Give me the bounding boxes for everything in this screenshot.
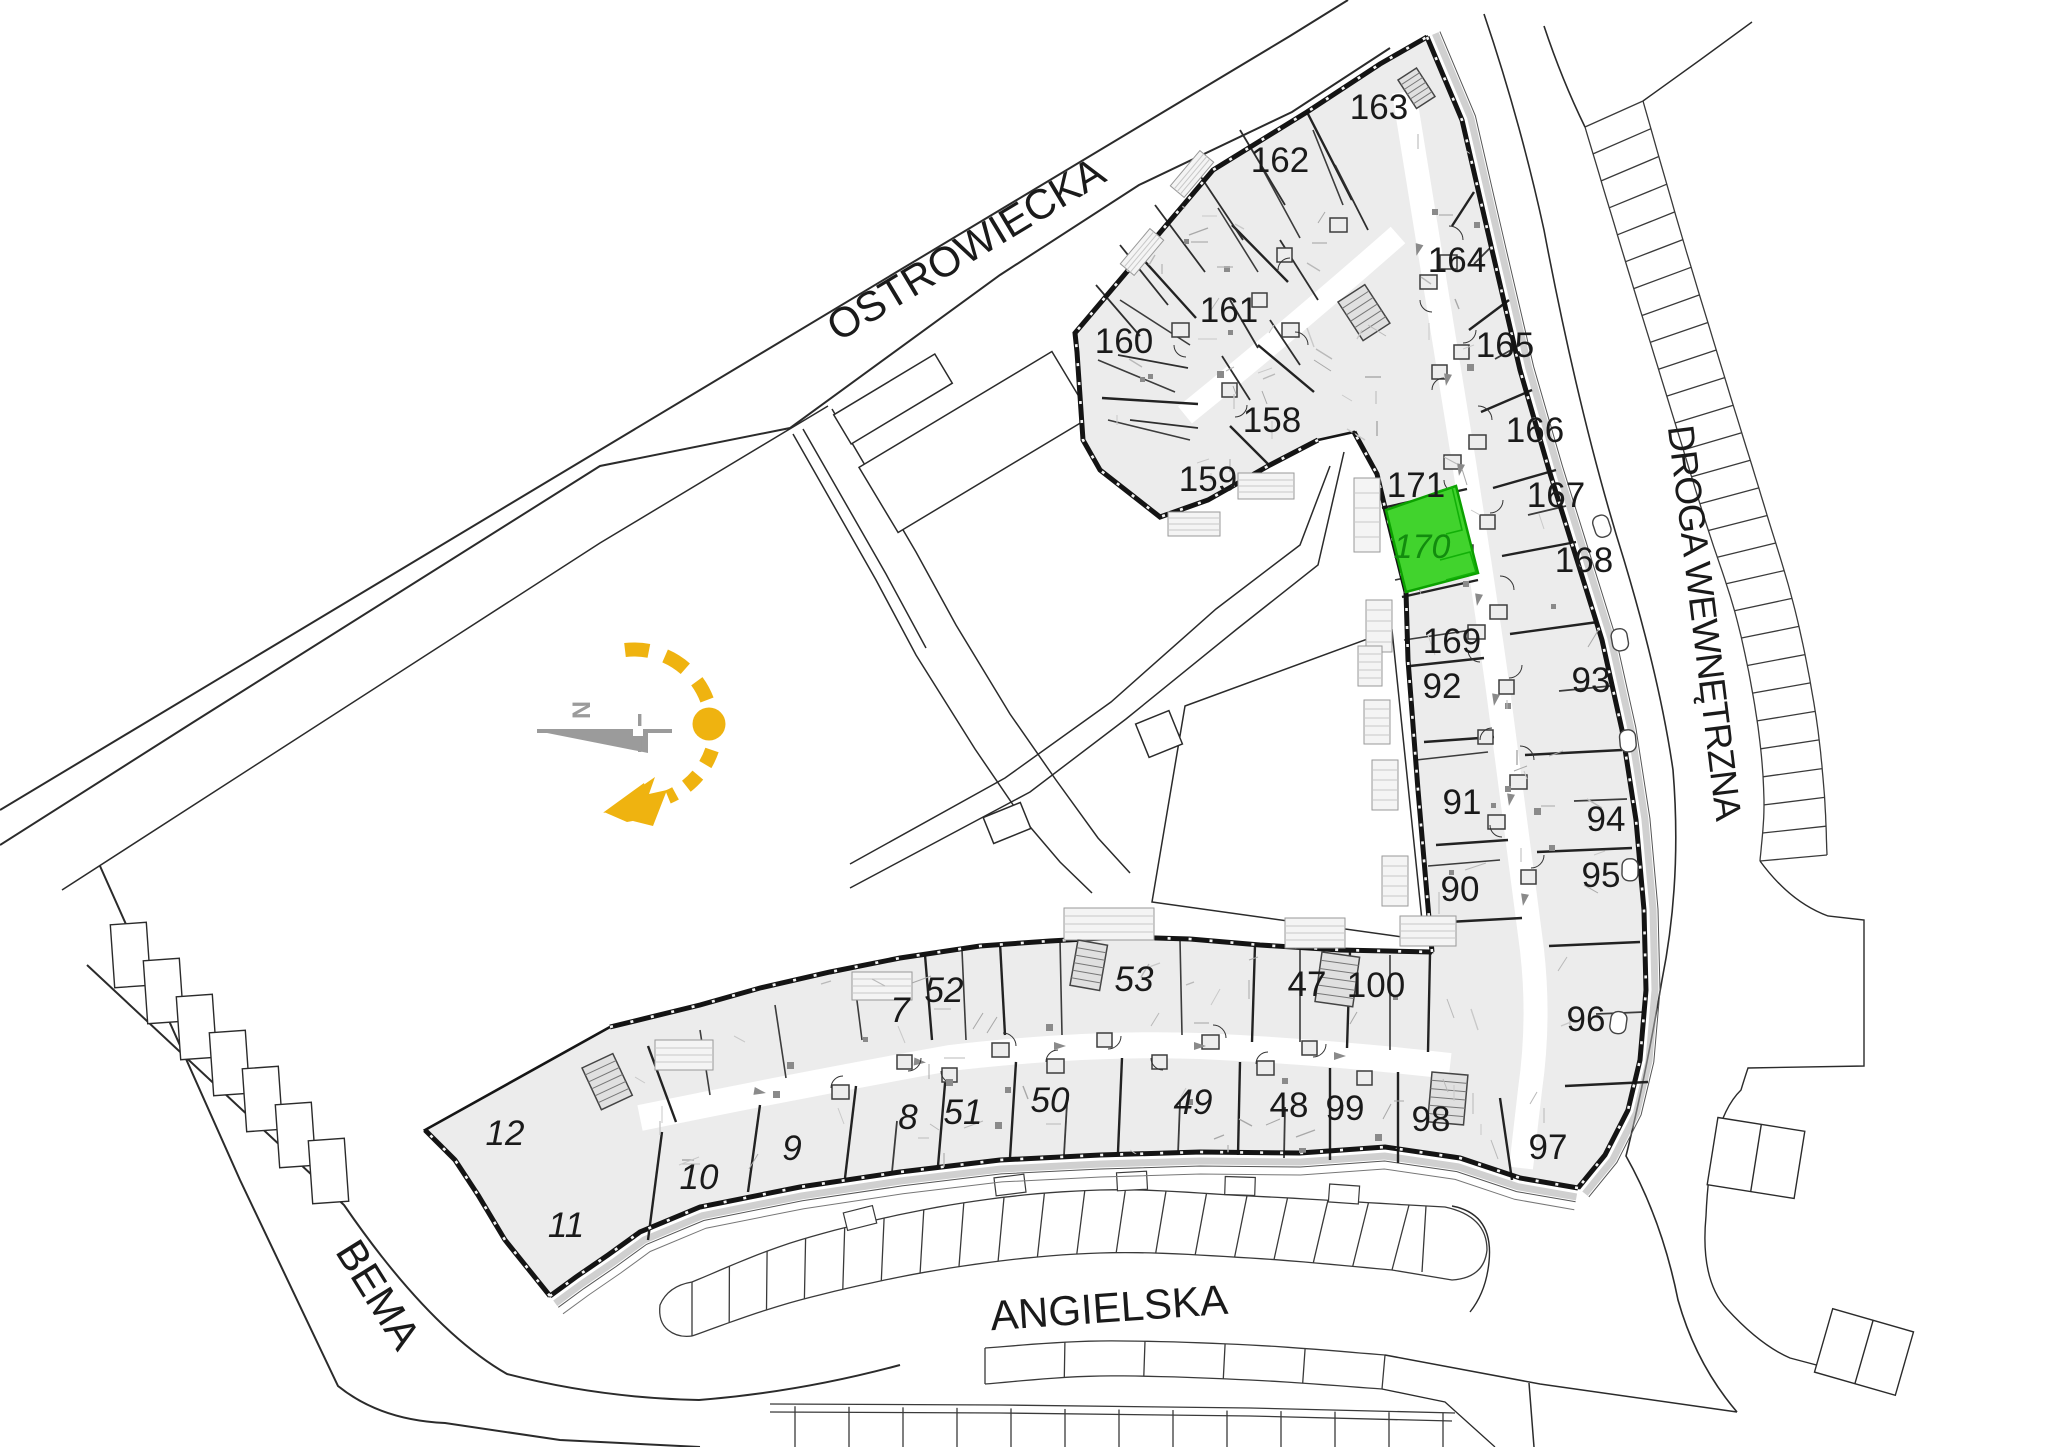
svg-text:95: 95: [1582, 856, 1621, 895]
svg-text:162: 162: [1251, 141, 1309, 180]
svg-text:52: 52: [925, 971, 964, 1010]
svg-text:100: 100: [1347, 966, 1405, 1005]
svg-text:166: 166: [1506, 411, 1564, 450]
svg-text:158: 158: [1243, 401, 1301, 440]
svg-text:50: 50: [1031, 1081, 1070, 1120]
svg-text:8: 8: [898, 1098, 918, 1137]
svg-text:165: 165: [1476, 326, 1534, 365]
svg-text:47: 47: [1288, 965, 1327, 1004]
svg-text:163: 163: [1350, 88, 1408, 127]
svg-text:93: 93: [1572, 661, 1611, 700]
svg-text:97: 97: [1529, 1128, 1568, 1167]
svg-text:161: 161: [1200, 291, 1258, 330]
svg-text:98: 98: [1412, 1100, 1451, 1139]
svg-text:167: 167: [1527, 476, 1585, 515]
svg-text:99: 99: [1326, 1089, 1365, 1128]
svg-text:7: 7: [890, 991, 911, 1030]
svg-text:171: 171: [1387, 466, 1445, 505]
svg-text:159: 159: [1179, 460, 1237, 499]
svg-text:94: 94: [1587, 800, 1626, 839]
svg-text:11: 11: [548, 1206, 584, 1245]
svg-text:48: 48: [1270, 1086, 1309, 1125]
svg-text:160: 160: [1095, 322, 1153, 361]
svg-text:12: 12: [486, 1114, 525, 1153]
svg-text:51: 51: [944, 1093, 983, 1132]
svg-text:96: 96: [1567, 1000, 1606, 1039]
svg-text:53: 53: [1115, 960, 1154, 999]
svg-text:90: 90: [1441, 870, 1480, 909]
svg-text:92: 92: [1423, 667, 1462, 706]
svg-text:170: 170: [1394, 528, 1451, 566]
svg-text:49: 49: [1174, 1083, 1213, 1122]
svg-text:9: 9: [782, 1129, 801, 1168]
svg-text:10: 10: [680, 1158, 719, 1197]
svg-text:168: 168: [1555, 541, 1613, 580]
svg-text:N: N: [568, 701, 596, 719]
svg-text:164: 164: [1428, 241, 1486, 280]
svg-text:169: 169: [1423, 622, 1481, 661]
svg-text:91: 91: [1443, 783, 1482, 822]
